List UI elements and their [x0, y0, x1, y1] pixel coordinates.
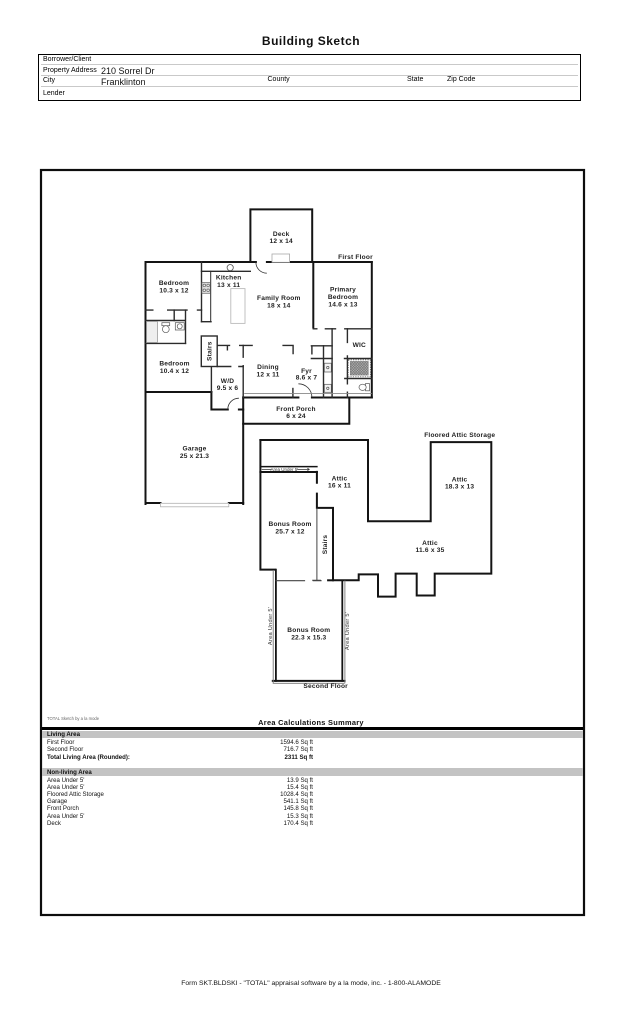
- svg-text:12 x 11: 12 x 11: [256, 371, 279, 378]
- svg-text:Attic: Attic: [452, 476, 468, 483]
- svg-text:Kitchen: Kitchen: [216, 274, 242, 281]
- svg-text:First Floor: First Floor: [338, 254, 373, 261]
- svg-text:Second Floor: Second Floor: [303, 683, 348, 690]
- svg-text:10.3 x 12: 10.3 x 12: [159, 287, 188, 294]
- svg-text:9.5 x 6: 9.5 x 6: [217, 385, 239, 392]
- svg-text:Stairs: Stairs: [207, 341, 214, 361]
- svg-text:Area Under 5': Area Under 5': [270, 467, 298, 472]
- svg-text:Bedroom: Bedroom: [159, 360, 189, 367]
- svg-text:Bonus Room: Bonus Room: [268, 521, 311, 528]
- svg-text:12 x 14: 12 x 14: [269, 238, 293, 245]
- svg-text:25.7 x 12: 25.7 x 12: [275, 528, 304, 535]
- svg-text:Front Porch: Front Porch: [276, 406, 316, 413]
- svg-text:13 x 11: 13 x 11: [217, 282, 240, 289]
- svg-text:Bedroom: Bedroom: [159, 280, 189, 287]
- svg-text:Garage: Garage: [183, 445, 207, 452]
- svg-text:25 x 21.3: 25 x 21.3: [180, 453, 209, 460]
- svg-text:Dining: Dining: [257, 364, 279, 371]
- svg-text:14.6 x 13: 14.6 x 13: [328, 302, 357, 309]
- svg-text:11.6 x 35: 11.6 x 35: [416, 547, 445, 554]
- svg-text:18.3 x 13: 18.3 x 13: [445, 483, 474, 490]
- svg-text:Area Under 5': Area Under 5': [345, 612, 351, 650]
- svg-text:8.6 x 7: 8.6 x 7: [296, 375, 318, 382]
- svg-text:16 x 11: 16 x 11: [328, 483, 351, 490]
- svg-text:WIC: WIC: [353, 342, 366, 349]
- svg-text:22.3 x 15.3: 22.3 x 15.3: [291, 635, 326, 642]
- svg-text:18 x 14: 18 x 14: [267, 302, 291, 309]
- svg-text:6 x 24: 6 x 24: [286, 413, 306, 420]
- svg-text:Deck: Deck: [273, 231, 290, 238]
- svg-text:10.4 x 12: 10.4 x 12: [160, 368, 189, 375]
- svg-text:Floored Attic Storage: Floored Attic Storage: [424, 432, 495, 439]
- svg-text:Attic: Attic: [332, 476, 348, 483]
- svg-text:Area Under 5': Area Under 5': [268, 607, 274, 645]
- svg-text:Family Room: Family Room: [257, 295, 301, 302]
- svg-text:Bonus Room: Bonus Room: [287, 627, 330, 634]
- svg-text:Primary: Primary: [330, 287, 356, 294]
- svg-text:Stairs: Stairs: [322, 535, 329, 555]
- svg-text:Bedroom: Bedroom: [328, 294, 358, 301]
- svg-text:Attic: Attic: [422, 540, 438, 547]
